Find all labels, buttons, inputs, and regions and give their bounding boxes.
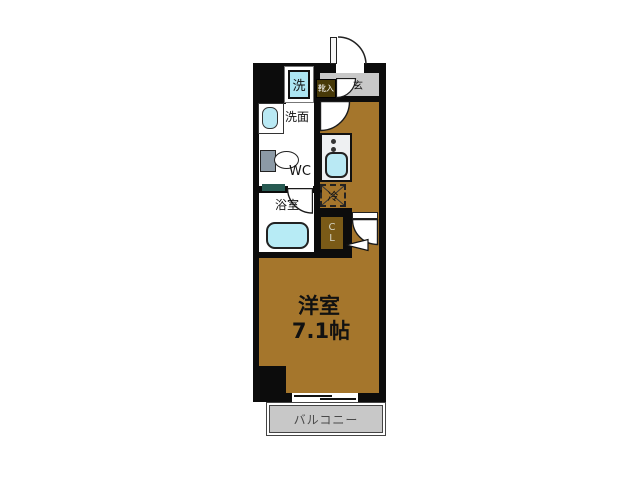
washroom-label: 洗面 bbox=[285, 108, 309, 125]
balcony-label: バルコニー bbox=[294, 411, 359, 428]
mainroom-door-leaf bbox=[352, 212, 378, 219]
shoe-cabinet-label: 靴入 bbox=[318, 83, 334, 94]
window-sash-line-left bbox=[294, 395, 332, 397]
laundry-label: 洗 bbox=[292, 75, 305, 94]
closet: C L bbox=[318, 214, 346, 252]
kitchen-unit bbox=[320, 133, 352, 182]
balcony-window bbox=[292, 393, 358, 402]
washing-machine-icon: 洗 bbox=[288, 70, 310, 99]
counter-bar bbox=[262, 184, 285, 191]
washbasin-bowl-icon bbox=[262, 107, 278, 129]
closet-label-line2: L bbox=[329, 233, 335, 244]
balcony: バルコニー bbox=[266, 402, 386, 436]
entrance-door-leaf bbox=[330, 37, 337, 64]
floorplan-canvas: 靴入 玄 洗 洗面 WC 浴室 冷 C L bbox=[0, 0, 640, 480]
door-swing-arrow-icon bbox=[345, 238, 370, 253]
bathroom-label: 浴室 bbox=[275, 196, 299, 213]
shoe-cabinet: 靴入 bbox=[316, 79, 336, 98]
refrigerator-label: 冷 bbox=[328, 188, 339, 204]
window-sash-line-right bbox=[320, 398, 356, 400]
washbasin-unit bbox=[258, 103, 284, 134]
pillar-bottom-left bbox=[253, 366, 286, 402]
main-room-size: 7.1帖 bbox=[279, 315, 363, 345]
entrance-label: 玄 bbox=[353, 77, 363, 92]
toilet-label: WC bbox=[289, 164, 311, 179]
refrigerator-space: 冷 bbox=[320, 184, 346, 207]
outer-wall-right bbox=[379, 63, 386, 402]
wall-mainroom-top bbox=[253, 252, 352, 258]
burner-dot-1 bbox=[331, 139, 336, 144]
hall-door-arc bbox=[320, 101, 351, 132]
balcony-inner: バルコニー bbox=[269, 405, 383, 433]
outer-wall-bottom-right-segment bbox=[358, 393, 386, 402]
bathtub-icon bbox=[266, 222, 309, 249]
corner-block-top-left bbox=[253, 63, 286, 104]
kitchen-sink-icon bbox=[325, 152, 348, 178]
closet-label-line1: C bbox=[329, 222, 336, 233]
entrance-door-arc bbox=[338, 36, 367, 65]
